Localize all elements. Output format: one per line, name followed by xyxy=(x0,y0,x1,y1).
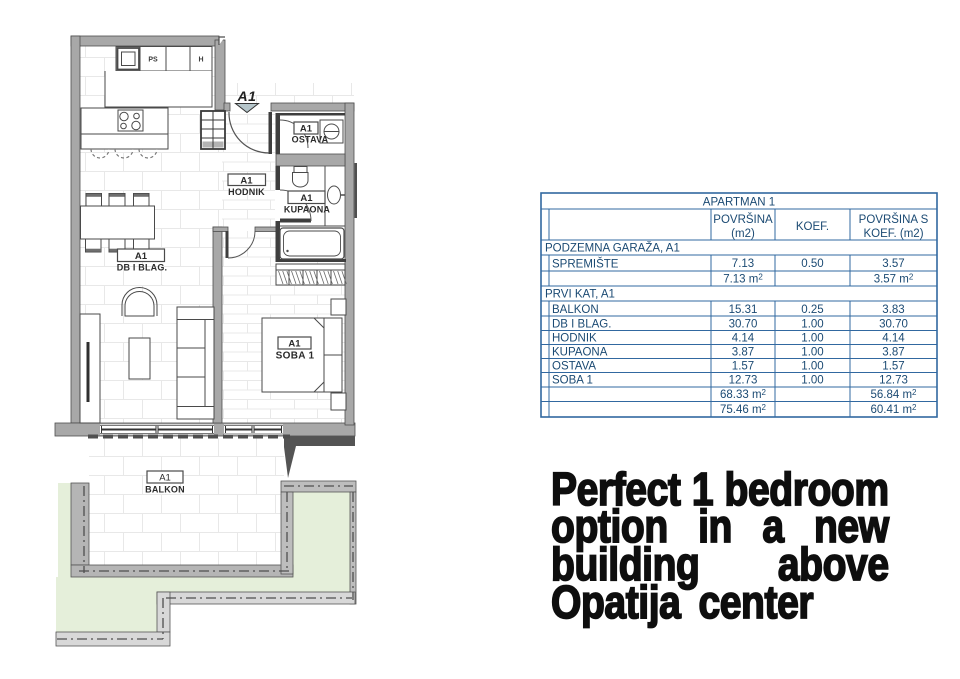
svg-text:DB I BLAG.: DB I BLAG. xyxy=(117,263,168,273)
svg-text:15.31: 15.31 xyxy=(729,304,758,316)
svg-text:7.13 m2: 7.13 m2 xyxy=(723,273,763,286)
svg-text:3.57: 3.57 xyxy=(882,258,904,270)
svg-text:A1: A1 xyxy=(240,176,253,187)
svg-text:1.00: 1.00 xyxy=(801,333,823,345)
svg-text:SPREMIŠTE: SPREMIŠTE xyxy=(552,258,619,271)
svg-text:30.70: 30.70 xyxy=(729,319,758,331)
svg-text:60.41 m2: 60.41 m2 xyxy=(870,403,917,416)
svg-text:A1: A1 xyxy=(159,473,171,484)
svg-text:1.00: 1.00 xyxy=(801,319,823,331)
svg-text:BALKON: BALKON xyxy=(552,304,599,316)
svg-text:3.87: 3.87 xyxy=(732,347,754,359)
svg-text:APARTMAN 1: APARTMAN 1 xyxy=(703,197,775,209)
svg-text:A1: A1 xyxy=(237,88,257,104)
svg-text:KOEF.: KOEF. xyxy=(796,221,829,233)
svg-text:BALKON: BALKON xyxy=(145,485,185,495)
svg-text:7.13: 7.13 xyxy=(732,258,754,270)
svg-text:12.73: 12.73 xyxy=(729,375,758,387)
svg-text:KUPAONA: KUPAONA xyxy=(284,205,331,215)
svg-text:68.33 m2: 68.33 m2 xyxy=(720,388,767,401)
svg-text:0.50: 0.50 xyxy=(801,258,823,270)
svg-text:HODNIK: HODNIK xyxy=(228,187,265,197)
svg-text:1.57: 1.57 xyxy=(732,361,754,373)
svg-text:12.73: 12.73 xyxy=(879,375,908,387)
svg-text:POVRŠINA: POVRŠINA xyxy=(713,213,773,226)
svg-text:A1: A1 xyxy=(300,193,313,204)
svg-text:4.14: 4.14 xyxy=(732,333,755,345)
svg-text:POVRŠINA S: POVRŠINA S xyxy=(859,213,929,226)
svg-text:3.57 m2: 3.57 m2 xyxy=(874,273,914,286)
svg-text:SOBA 1: SOBA 1 xyxy=(552,375,593,387)
svg-text:0.25: 0.25 xyxy=(801,304,823,316)
svg-text:OSTAVA: OSTAVA xyxy=(292,135,329,145)
svg-text:56.84 m2: 56.84 m2 xyxy=(870,388,917,401)
svg-text:HODNIK: HODNIK xyxy=(552,333,597,345)
svg-text:4.14: 4.14 xyxy=(882,333,905,345)
svg-text:A1: A1 xyxy=(135,251,148,262)
svg-text:PODZEMNA GARAŽA, A1: PODZEMNA GARAŽA, A1 xyxy=(545,242,680,255)
svg-text:DB I BLAG.: DB I BLAG. xyxy=(552,319,611,331)
svg-text:1.00: 1.00 xyxy=(801,347,823,359)
svg-text:A1: A1 xyxy=(288,339,301,350)
svg-text:1.00: 1.00 xyxy=(801,375,823,387)
svg-text:PS: PS xyxy=(148,57,158,64)
svg-text:KUPAONA: KUPAONA xyxy=(552,347,608,359)
svg-text:30.70: 30.70 xyxy=(879,319,908,331)
svg-text:H: H xyxy=(198,57,203,64)
svg-text:OSTAVA: OSTAVA xyxy=(552,361,596,373)
svg-text:3.87: 3.87 xyxy=(882,347,904,359)
svg-text:1.00: 1.00 xyxy=(801,361,823,373)
svg-text:PRVI KAT, A1: PRVI KAT, A1 xyxy=(545,289,615,301)
svg-text:(m2): (m2) xyxy=(731,228,755,240)
svg-text:1.57: 1.57 xyxy=(882,361,904,373)
svg-text:SOBA 1: SOBA 1 xyxy=(276,351,315,362)
svg-text:75.46 m2: 75.46 m2 xyxy=(720,403,767,416)
svg-text:3.83: 3.83 xyxy=(882,304,904,316)
svg-text:A1: A1 xyxy=(300,124,313,135)
svg-text:KOEF. (m2): KOEF. (m2) xyxy=(863,228,923,240)
